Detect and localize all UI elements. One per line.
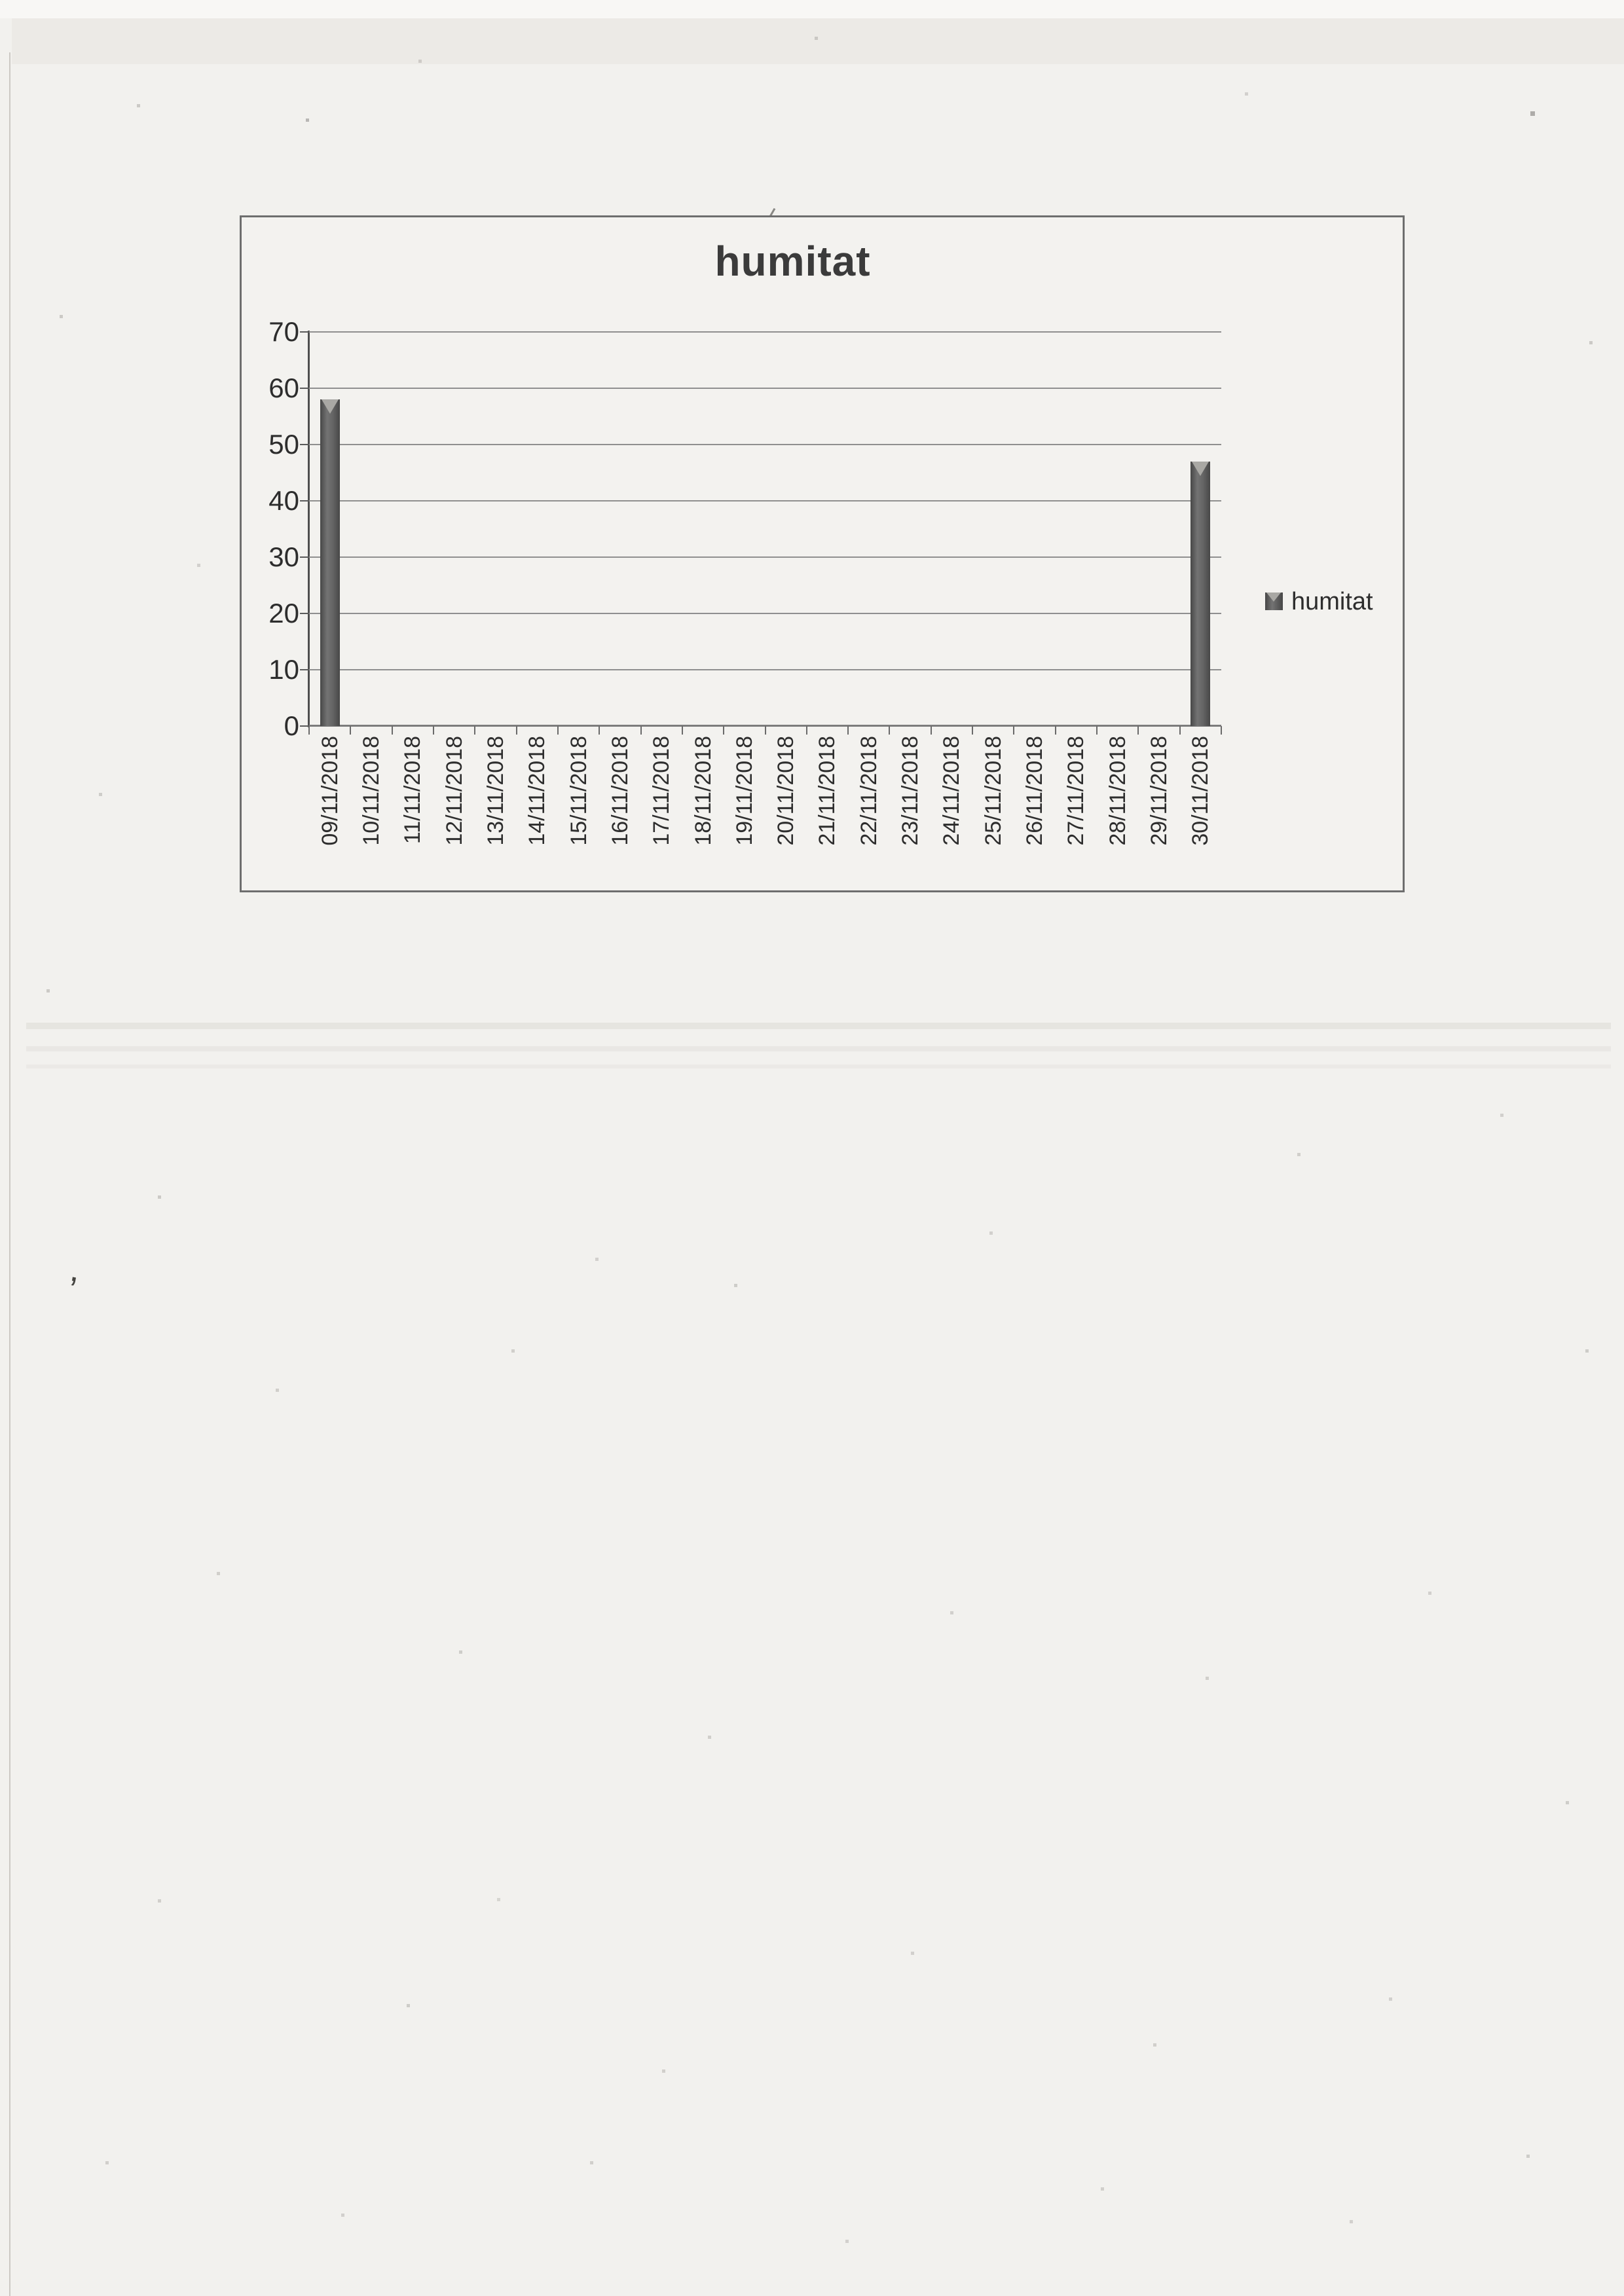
- y-axis-tick: [300, 725, 309, 727]
- x-tick-label: 12/11/2018: [441, 736, 468, 873]
- x-axis-tick: [847, 726, 849, 735]
- x-axis-tick: [806, 726, 807, 735]
- chart-frame: humitat humitat 01020304050607009/11/201…: [240, 215, 1405, 892]
- y-axis-tick: [300, 613, 309, 614]
- y-axis-tick: [300, 669, 309, 670]
- bar-bevel-icon: [1192, 462, 1209, 476]
- x-tick-label: 14/11/2018: [524, 736, 550, 873]
- y-tick-label: 70: [246, 316, 299, 348]
- x-tick-label: 26/11/2018: [1022, 736, 1048, 873]
- x-tick-label: 21/11/2018: [814, 736, 840, 873]
- x-axis-tick: [350, 726, 351, 735]
- x-axis-tick: [516, 726, 517, 735]
- x-tick-label: 29/11/2018: [1146, 736, 1172, 873]
- x-tick-label: 11/11/2018: [399, 736, 426, 873]
- legend-swatch-bevel-icon: [1266, 592, 1281, 602]
- y-axis-tick: [300, 331, 309, 333]
- y-axis-tick: [300, 556, 309, 558]
- bar-09/11/2018: [320, 399, 340, 726]
- y-tick-label: 20: [246, 597, 299, 630]
- bar-bevel-icon: [322, 399, 339, 414]
- y-tick-label: 30: [246, 541, 299, 574]
- gridline-50: [309, 444, 1221, 445]
- scan-band: [26, 1023, 1611, 1029]
- x-axis-tick: [599, 726, 600, 735]
- x-tick-label: 09/11/2018: [317, 736, 343, 873]
- x-axis-tick: [474, 726, 475, 735]
- x-tick-label: 22/11/2018: [856, 736, 882, 873]
- x-axis-tick: [433, 726, 434, 735]
- x-axis-tick: [1096, 726, 1098, 735]
- x-tick-label: 16/11/2018: [607, 736, 633, 873]
- scanned-page: { "chart_data": { "type": "bar", "title"…: [0, 0, 1624, 2296]
- scan-band: [26, 1046, 1611, 1051]
- y-tick-label: 0: [246, 710, 299, 742]
- y-axis-tick: [300, 444, 309, 445]
- x-axis-tick: [765, 726, 766, 735]
- scan-noise-speckles: [0, 0, 2, 2]
- x-axis-tick: [1179, 726, 1181, 735]
- x-tick-label: 25/11/2018: [980, 736, 1006, 873]
- gridline-10: [309, 669, 1221, 670]
- y-axis-tick: [300, 500, 309, 501]
- gridline-20: [309, 613, 1221, 614]
- y-axis-line: [308, 331, 310, 727]
- x-axis-tick: [640, 726, 642, 735]
- chart-title: humitat: [242, 237, 1344, 285]
- x-axis-tick: [931, 726, 932, 735]
- y-tick-label: 60: [246, 372, 299, 405]
- scanner-top-strip: [0, 0, 1624, 18]
- x-tick-label: 28/11/2018: [1105, 736, 1131, 873]
- gridline-40: [309, 500, 1221, 501]
- gridline-30: [309, 556, 1221, 558]
- x-tick-label: 10/11/2018: [358, 736, 384, 873]
- gridline-70: [309, 331, 1221, 333]
- x-axis-tick: [1013, 726, 1014, 735]
- x-axis-tick: [557, 726, 559, 735]
- gridline-60: [309, 388, 1221, 389]
- scan-shade-band: [12, 18, 1624, 64]
- y-tick-label: 40: [246, 484, 299, 517]
- x-axis-tick: [308, 726, 310, 735]
- bar-30/11/2018: [1190, 462, 1210, 726]
- y-tick-label: 10: [246, 653, 299, 686]
- x-tick-label: 13/11/2018: [483, 736, 509, 873]
- plot-area: [309, 332, 1221, 726]
- x-tick-label: 19/11/2018: [731, 736, 758, 873]
- legend-swatch: [1265, 592, 1283, 610]
- x-axis-tick: [1055, 726, 1056, 735]
- x-axis-tick: [889, 726, 890, 735]
- x-tick-label: 17/11/2018: [648, 736, 674, 873]
- x-tick-label: 27/11/2018: [1063, 736, 1089, 873]
- x-tick-label: 23/11/2018: [897, 736, 923, 873]
- x-tick-label: 24/11/2018: [938, 736, 965, 873]
- x-axis-tick: [1137, 726, 1139, 735]
- x-tick-label: 30/11/2018: [1187, 736, 1213, 873]
- x-axis-tick: [392, 726, 393, 735]
- y-tick-label: 50: [246, 428, 299, 461]
- x-axis-tick: [682, 726, 683, 735]
- paper-left-edge: [9, 52, 10, 2296]
- scan-band: [26, 1065, 1611, 1068]
- x-tick-label: 18/11/2018: [690, 736, 716, 873]
- y-axis-tick: [300, 388, 309, 389]
- x-axis-tick: [972, 726, 973, 735]
- x-tick-label: 20/11/2018: [773, 736, 799, 873]
- legend-label: humitat: [1291, 588, 1373, 615]
- ink-speck-artifact: ,: [67, 1248, 84, 1290]
- x-axis-tick: [723, 726, 724, 735]
- x-axis-tick: [1221, 726, 1222, 735]
- x-tick-label: 15/11/2018: [566, 736, 592, 873]
